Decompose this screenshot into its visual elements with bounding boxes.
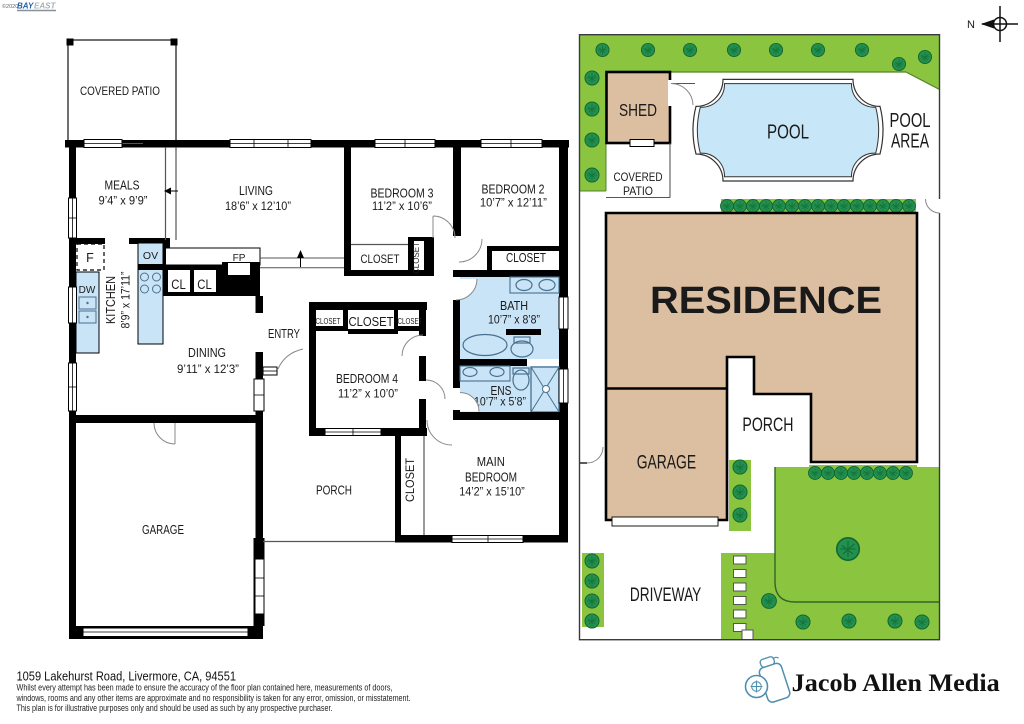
svg-text:DW: DW [79,285,96,296]
svg-text:CL: CL [197,277,212,292]
svg-text:CLOSET: CLOSET [349,315,394,329]
svg-text:AREA: AREA [891,131,929,153]
svg-text:1059 Lakehurst Road, Livermore: 1059 Lakehurst Road, Livermore, CA, 9455… [17,669,237,684]
svg-text:18’6” x 12’10”: 18’6” x 12’10” [225,199,291,213]
svg-text:BAY: BAY [17,2,34,11]
svg-text:KITCHEN: KITCHEN [103,276,118,324]
svg-text:OV: OV [143,250,158,262]
svg-text:9’4” x 9’9”: 9’4” x 9’9” [99,193,148,207]
svg-text:BEDROOM: BEDROOM [465,470,517,484]
svg-text:CLOSET: CLOSET [405,458,417,502]
svg-text:CL: CL [171,277,186,292]
svg-text:PORCH: PORCH [316,484,352,498]
svg-text:CLOSET: CLOSET [398,317,423,326]
svg-text:8’9” x 17’11”: 8’9” x 17’11” [119,272,133,329]
svg-text:COVERED: COVERED [614,172,663,184]
svg-text:Whilst every attempt has been: Whilst every attempt has been made to en… [17,683,393,693]
svg-text:windows, rooms and any other i: windows, rooms and any other items are a… [16,693,411,703]
svg-text:BATH: BATH [500,299,528,313]
svg-text:PORCH: PORCH [742,414,793,436]
svg-text:Jacob Allen Media: Jacob Allen Media [792,670,1001,697]
svg-text:CLOSET: CLOSET [506,251,546,265]
svg-text:10’7” x 8’8”: 10’7” x 8’8” [488,313,540,327]
svg-text:This plan is for illustrative: This plan is for illustrative purposes o… [17,703,333,713]
svg-text:PATIO: PATIO [623,186,653,198]
svg-text:LIVING: LIVING [239,184,273,198]
svg-text:CLOSET: CLOSET [412,242,421,274]
svg-text:BEDROOM 2: BEDROOM 2 [482,183,545,197]
svg-text:11’2” x 10’0”: 11’2” x 10’0” [338,387,398,401]
svg-text:10’7” x 5’8”: 10’7” x 5’8” [474,395,526,409]
svg-text:POOL: POOL [890,110,931,132]
svg-text:RESIDENCE: RESIDENCE [650,280,882,322]
svg-text:GARAGE: GARAGE [142,523,184,537]
svg-text:DINING: DINING [188,346,226,360]
svg-text:EAST: EAST [34,2,56,11]
svg-text:FP: FP [233,253,246,264]
svg-text:9’11” x 12’3”: 9’11” x 12’3” [177,362,239,376]
svg-text:©2020: ©2020 [2,3,18,10]
svg-text:N: N [967,19,975,31]
svg-text:BEDROOM 4: BEDROOM 4 [336,372,398,386]
svg-text:CLOSET: CLOSET [361,254,400,266]
svg-text:DRIVEWAY: DRIVEWAY [630,584,701,606]
svg-text:GARAGE: GARAGE [637,451,696,473]
svg-text:14’2” x 15’10”: 14’2” x 15’10” [459,485,525,499]
svg-text:MEALS: MEALS [105,179,140,193]
svg-text:MAIN: MAIN [477,455,505,469]
svg-text:CLOSET: CLOSET [316,317,341,326]
svg-text:ENTRY: ENTRY [268,327,301,341]
svg-text:POOL: POOL [767,122,809,144]
svg-text:F: F [86,251,94,265]
svg-text:10’7” x 12’11”: 10’7” x 12’11” [480,196,547,210]
svg-text:SHED: SHED [619,100,657,120]
svg-text:COVERED PATIO: COVERED PATIO [80,86,160,98]
svg-text:11’2” x 10’6”: 11’2” x 10’6” [372,199,432,213]
